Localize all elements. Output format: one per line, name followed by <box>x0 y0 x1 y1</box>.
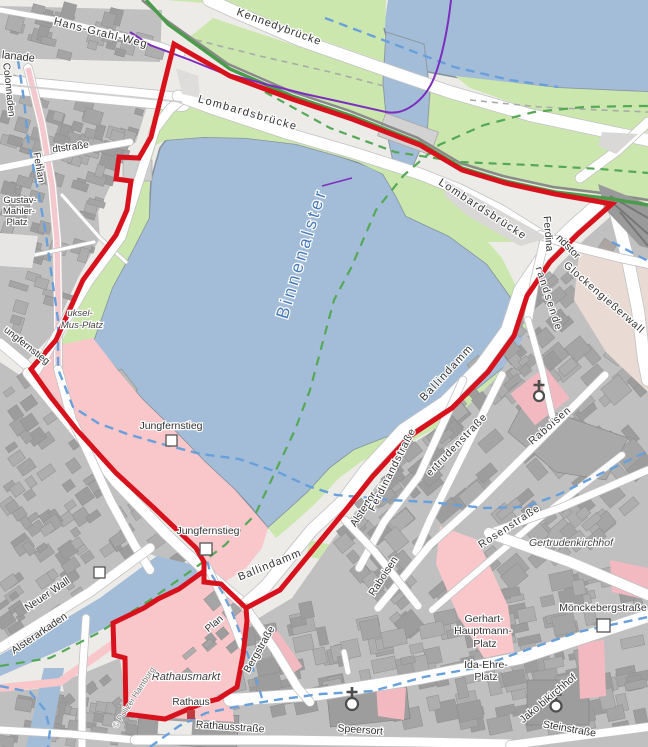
svg-text:Jungfernstieg: Jungfernstieg <box>139 420 202 432</box>
svg-text:Gustav-: Gustav- <box>3 195 36 206</box>
svg-text:Rathausmarkt: Rathausmarkt <box>152 671 221 683</box>
svg-text:uksel-: uksel- <box>67 308 92 319</box>
svg-text:Platz: Platz <box>474 671 497 683</box>
svg-text:Mönckebergstraße: Mönckebergstraße <box>559 602 647 614</box>
svg-text:Platz: Platz <box>473 638 496 650</box>
svg-text:Mahler-: Mahler- <box>3 206 35 217</box>
svg-text:Hauptmann-: Hauptmann- <box>454 625 512 637</box>
svg-text:Gerhart-: Gerhart- <box>464 613 504 625</box>
svg-text:Gertrudenkirchhof: Gertrudenkirchhof <box>529 537 614 549</box>
svg-text:Platz: Platz <box>6 217 27 228</box>
svg-text:Mus-Platz: Mus-Platz <box>61 320 103 331</box>
svg-text:Rathaus: Rathaus <box>172 697 209 708</box>
svg-text:Jungfernstieg: Jungfernstieg <box>176 525 239 537</box>
svg-text:Ida-Ehre-: Ida-Ehre- <box>464 659 508 671</box>
